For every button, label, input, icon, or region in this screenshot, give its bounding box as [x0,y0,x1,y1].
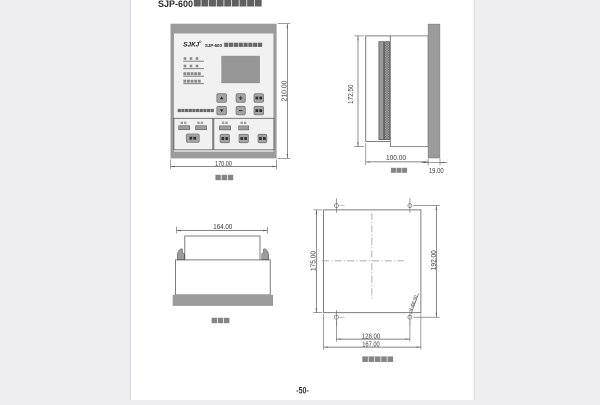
svg-text:167.00: 167.00 [362,341,380,348]
svg-text:164.00: 164.00 [213,224,232,231]
svg-text:170.00: 170.00 [215,161,232,168]
svg-text:100.00: 100.00 [386,155,406,162]
svg-text:SJP-600: SJP-600 [158,0,193,9]
svg-text:-50-: -50- [296,386,309,397]
svg-text:210.00: 210.00 [281,80,288,101]
svg-text:172.50: 172.50 [348,84,355,104]
svg-text:SJKJ: SJKJ [183,42,199,49]
svg-text:SJP-600: SJP-600 [205,43,222,49]
svg-text:192.00: 192.00 [431,250,438,270]
svg-text:175.00: 175.00 [311,251,318,271]
svg-text:128.00: 128.00 [362,333,381,340]
svg-text:19.00: 19.00 [429,168,444,175]
